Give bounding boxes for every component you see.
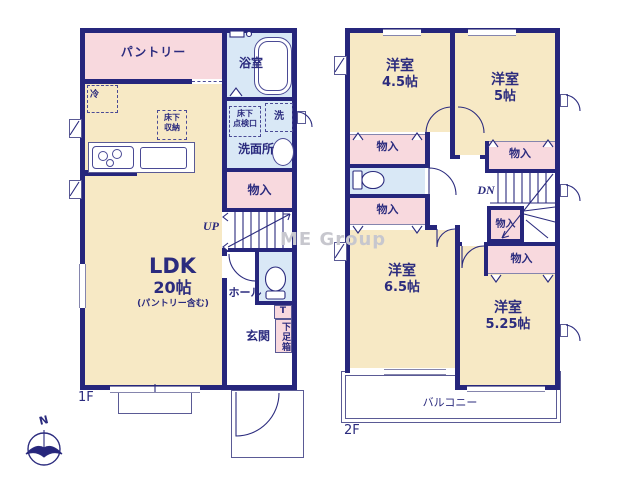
- closet-2f-e-label: 物入: [488, 253, 555, 266]
- refrigerator-space: 冷: [87, 85, 118, 113]
- room-label-washroom: 洗面所: [225, 143, 287, 157]
- room-label-entrance: 玄関: [232, 330, 284, 344]
- room-45-label: 洋室 4.5帖: [365, 58, 435, 91]
- ldk-note: (パントリー含む): [118, 299, 228, 309]
- room-45-name: 洋室: [386, 58, 414, 74]
- watermark: ME Group: [280, 229, 386, 250]
- wall: [222, 208, 297, 212]
- window: [383, 29, 421, 36]
- porch-step-ldk: [118, 392, 192, 414]
- washer-label: 洗: [274, 111, 284, 122]
- porch-entrance: [231, 390, 304, 458]
- underfloor-hatch: 床下 点検口: [229, 106, 261, 137]
- room-label-bath: 浴室: [227, 57, 275, 71]
- window-flap: [334, 56, 347, 75]
- wall: [450, 33, 455, 158]
- floor2-label: 2F: [344, 424, 370, 439]
- window: [468, 29, 516, 36]
- underfloor-hatch-label-2: 点検口: [233, 119, 257, 128]
- closet-2f-c-label: 物入: [485, 148, 555, 161]
- burner-icon: [112, 149, 122, 159]
- underfloor-storage-label-2: 収納: [164, 123, 180, 132]
- window: [79, 264, 86, 308]
- room-65: [350, 230, 455, 368]
- compass-north-label: N: [35, 413, 54, 429]
- floor1-label: 1F: [78, 391, 102, 406]
- underfloor-hatch-label-1: 床下: [237, 109, 253, 118]
- window-arc: [566, 95, 580, 341]
- balcony-label: バルコニー: [400, 397, 500, 410]
- wall: [450, 155, 460, 159]
- floor-plan-canvas: 冷 床下 収納 床下 点検口 洗: [0, 0, 640, 480]
- flap-line: [335, 58, 344, 258]
- stairs-up-label: UP: [200, 220, 222, 234]
- compass-icon: [26, 430, 62, 465]
- window: [384, 369, 446, 375]
- closet-2f-d-label: 物入: [489, 219, 522, 231]
- room-5-size: 5帖: [494, 89, 516, 104]
- room-525-label: 洋室 5.25帖: [468, 300, 548, 333]
- room-5-name: 洋室: [491, 72, 519, 88]
- room-65-label: 洋室 6.5帖: [367, 263, 437, 296]
- window: [110, 386, 200, 393]
- room-5-label: 洋室 5帖: [470, 72, 540, 105]
- wall: [485, 169, 555, 173]
- window-flap: [69, 180, 82, 199]
- closet-2f-a-label: 物入: [350, 141, 425, 154]
- wall: [425, 194, 430, 225]
- kitchen-sink-icon: [140, 147, 187, 169]
- room-525-size: 5.25帖: [485, 317, 530, 332]
- room-65-name: 洋室: [388, 263, 416, 279]
- washer-space: 洗: [265, 103, 293, 132]
- wall: [425, 132, 430, 168]
- underfloor-storage-label-1: 床下: [164, 113, 180, 122]
- ldk-name: LDK: [130, 254, 215, 278]
- pantry-open-boundary: [192, 81, 222, 82]
- casement-window: [560, 94, 568, 107]
- refrigerator-label: 冷: [90, 90, 99, 100]
- room-525-name: 洋室: [494, 300, 522, 316]
- stairs-down-label: DN: [474, 184, 498, 198]
- ldk-size: 20帖: [130, 279, 215, 297]
- room-label-pantry: パントリー: [85, 46, 222, 60]
- room-toilet-2f: [350, 168, 425, 194]
- burner-icon: [106, 159, 114, 167]
- door-flap: [297, 111, 306, 124]
- room-label-closet-1f: 物入: [227, 184, 292, 198]
- room-ldk: [85, 84, 222, 385]
- room-45-size: 4.5帖: [382, 75, 418, 90]
- toilet-t-label: T: [274, 306, 292, 316]
- casement-window: [560, 184, 568, 197]
- casement-window: [560, 324, 568, 337]
- closet-2f-b-label: 物入: [350, 204, 425, 217]
- window-flap: [69, 119, 82, 138]
- room-65-size: 6.5帖: [384, 280, 420, 295]
- underfloor-storage: 床下 収納: [157, 110, 187, 140]
- room-label-hall: ホール: [224, 287, 266, 300]
- window: [467, 386, 545, 392]
- wall: [460, 242, 462, 246]
